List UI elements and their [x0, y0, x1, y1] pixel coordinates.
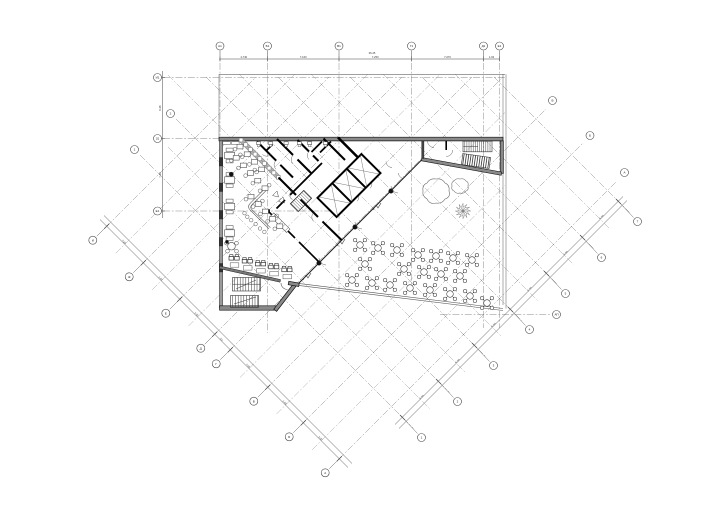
svg-text:А: А: [324, 471, 326, 475]
svg-text:Е1: Е1: [156, 209, 160, 213]
svg-text:4-740: 4-740: [240, 55, 247, 59]
svg-text:Д: Д: [200, 346, 202, 350]
svg-text:Е1: Е1: [498, 44, 502, 48]
svg-text:6-06: 6-06: [158, 105, 162, 111]
svg-text:Г1: Г1: [410, 44, 414, 48]
svg-text:В1: В1: [337, 44, 341, 48]
svg-text:7-070: 7-070: [444, 55, 451, 59]
svg-text:Б: Б: [589, 134, 591, 138]
svg-text:Д1: Д1: [482, 44, 486, 48]
svg-text:36-45: 36-45: [369, 51, 376, 55]
svg-text:1-63: 1-63: [489, 55, 495, 59]
svg-text:7-23: 7-23: [158, 172, 162, 178]
svg-text:Б: Б: [288, 435, 290, 439]
svg-text:Ж: Ж: [128, 275, 131, 279]
svg-text:В: В: [551, 99, 553, 103]
svg-text:А: А: [623, 171, 625, 175]
svg-text:З1: З1: [156, 137, 160, 141]
svg-text:А1: А1: [218, 44, 222, 48]
svg-text:АП: АП: [554, 313, 558, 317]
svg-text:И: И: [92, 238, 94, 242]
svg-text:Е: Е: [165, 311, 167, 315]
svg-text:7-160: 7-160: [300, 55, 307, 59]
svg-text:И1: И1: [156, 76, 160, 80]
svg-text:7-250: 7-250: [372, 55, 379, 59]
svg-text:В: В: [253, 399, 255, 403]
svg-text:Б1: Б1: [266, 44, 270, 48]
